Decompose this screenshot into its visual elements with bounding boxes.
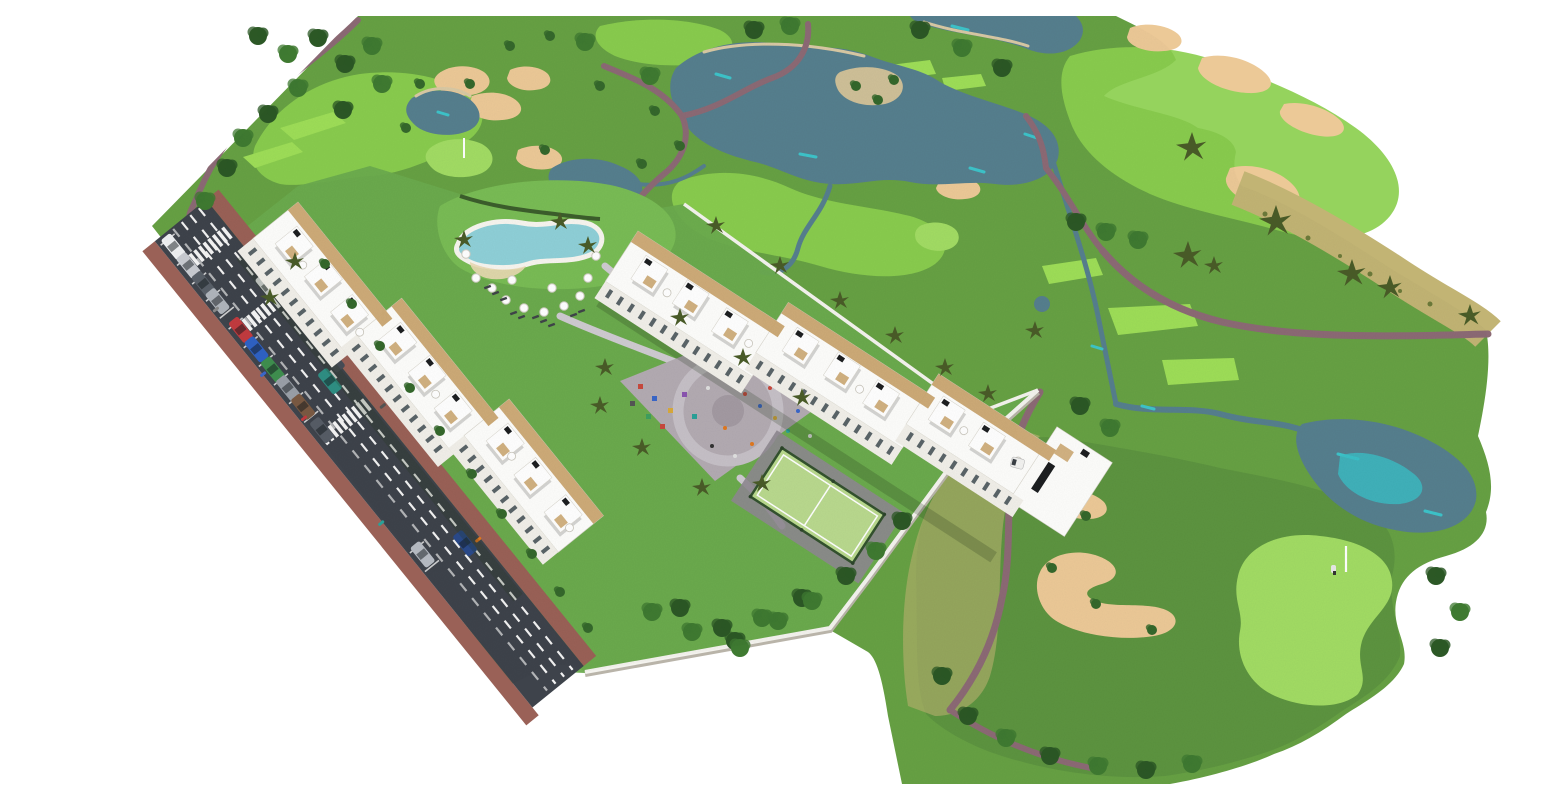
aerial-render: www.vistao: [40, 16, 1560, 784]
watermark: www.vistao: [1334, 714, 1515, 745]
